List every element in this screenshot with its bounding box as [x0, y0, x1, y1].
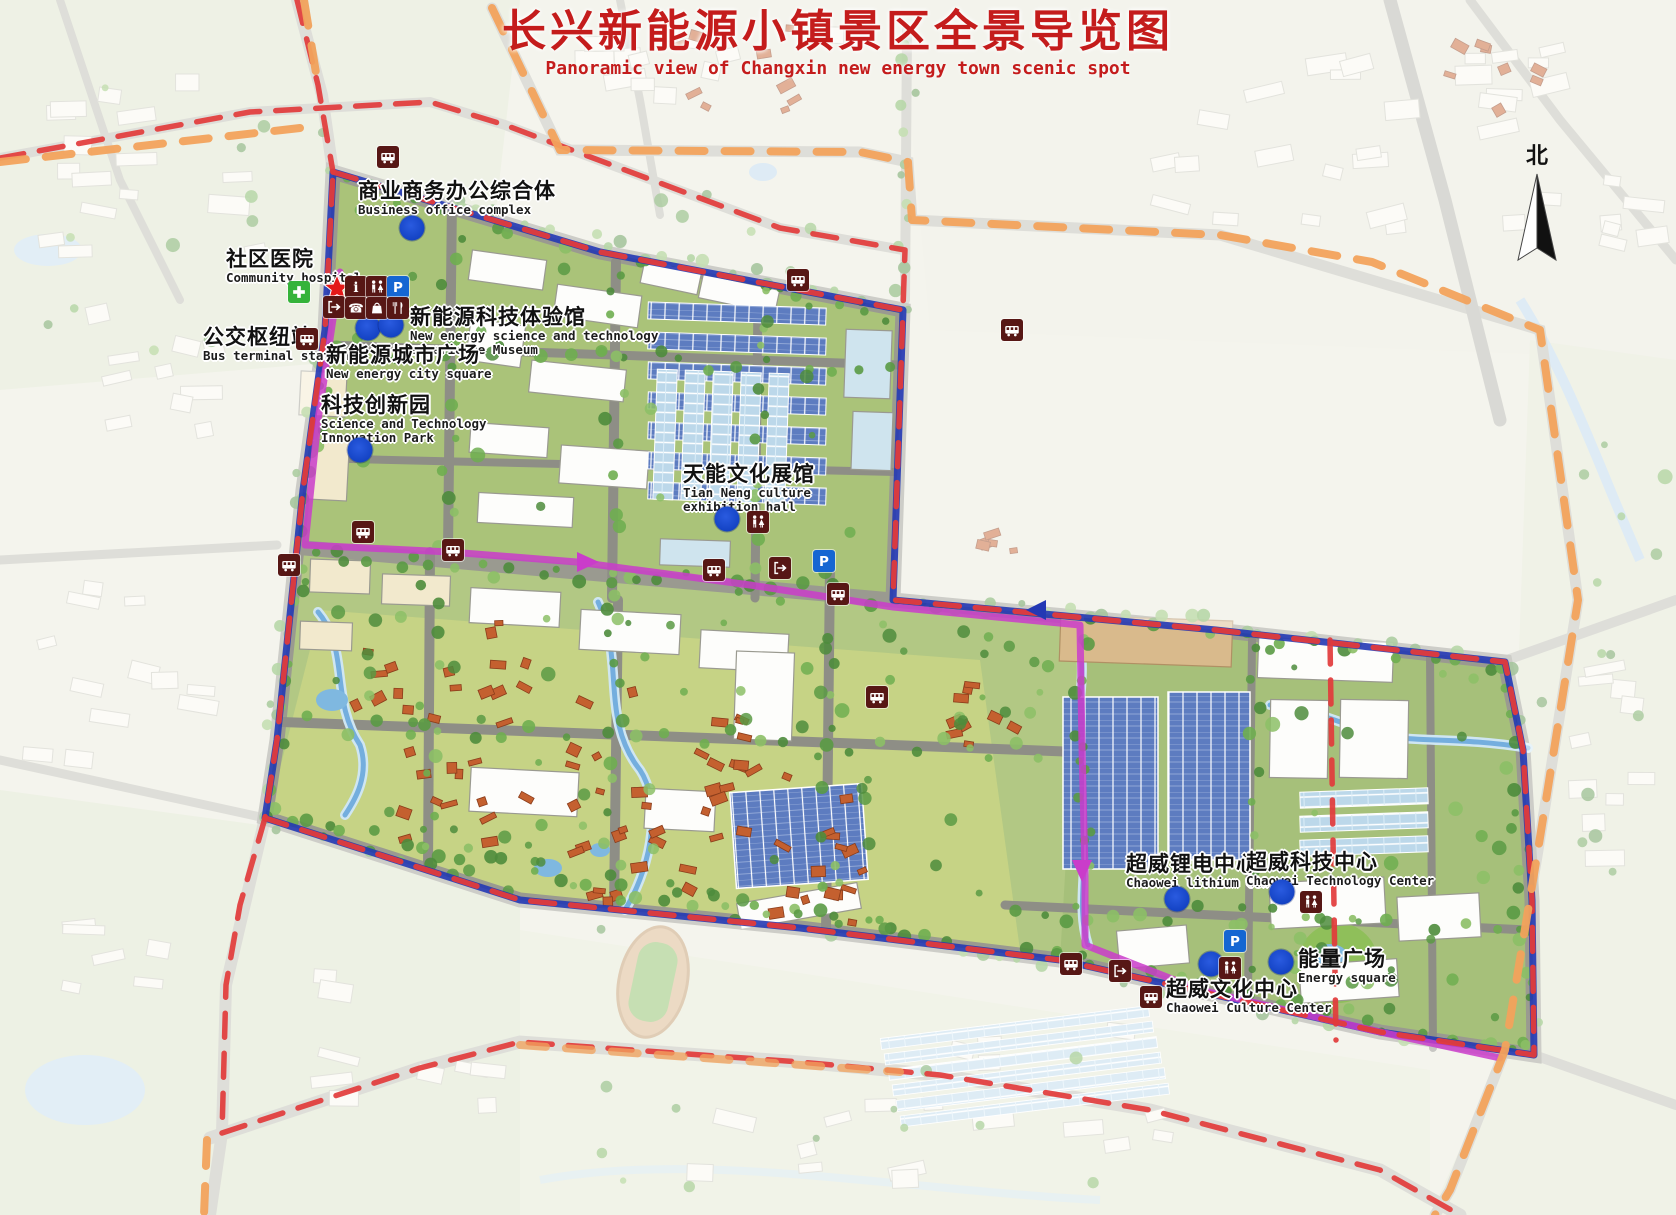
svg-text:☎: ☎	[348, 301, 364, 316]
poi-label-new-energy-city-square: 新能源城市广场New energy city square	[326, 344, 492, 381]
poi-name-en: New energy city square	[326, 367, 492, 381]
map-title-block: 长兴新能源小镇景区全景导览图 Panoramic view of Changxi…	[0, 8, 1676, 79]
bus-icon	[866, 686, 888, 708]
parking-icon: P	[387, 276, 409, 298]
map-subtitle: Panoramic view of Changxin new energy to…	[0, 58, 1676, 79]
poi-label-bus-terminal-station: 公交枢纽站Bus terminal station	[203, 326, 354, 363]
bus-icon	[787, 269, 809, 291]
poi-name-en: Energy square	[1298, 971, 1396, 985]
svg-text:P: P	[819, 554, 829, 570]
poi-name-zh: 商业商务办公综合体	[358, 180, 556, 202]
poi-name-zh: 新能源城市广场	[326, 344, 492, 366]
poi-dot	[1269, 950, 1294, 975]
exit-icon	[323, 296, 345, 318]
poi-name-zh: 社区医院	[226, 248, 361, 270]
bus-icon	[377, 146, 399, 168]
info-icon: i	[345, 276, 367, 298]
svg-text:P: P	[1230, 934, 1240, 950]
bus-icon	[278, 554, 300, 576]
phone-icon: ☎	[345, 297, 367, 319]
north-indicator: 北	[1506, 138, 1568, 268]
toilet-icon	[747, 511, 769, 533]
bus-icon	[827, 583, 849, 605]
poi-name-zh: 能量广场	[1298, 948, 1396, 970]
parking-icon: P	[813, 550, 835, 572]
bus-icon	[352, 521, 374, 543]
poi-dot	[400, 216, 425, 241]
exit-icon	[1109, 960, 1131, 982]
poi-name-en: Chaowei lithium Center	[1126, 876, 1292, 890]
bus-icon	[1060, 953, 1082, 975]
bus-icon	[296, 328, 318, 350]
poi-name-en: Bus terminal station	[203, 349, 354, 363]
hospital-cross-icon	[288, 281, 310, 303]
poi-label-sci-tech-innovation-park: 科技创新园Science and Technology Innovation P…	[321, 394, 487, 446]
poi-label-business-office-complex: 商业商务办公综合体Business office complex	[358, 180, 556, 217]
poi-name-zh: 超威锂电中心	[1126, 853, 1292, 875]
exit-icon	[769, 557, 791, 579]
bus-icon	[442, 539, 464, 561]
bus-icon	[1140, 986, 1162, 1008]
poi-dot	[1165, 887, 1190, 912]
shopping-icon	[366, 297, 388, 319]
map-overlay: 长兴新能源小镇景区全景导览图 Panoramic view of Changxi…	[0, 0, 1676, 1215]
svg-text:i: i	[353, 280, 358, 296]
poi-name-zh: 超威科技中心	[1246, 851, 1434, 873]
toilet-icon	[366, 276, 388, 298]
poi-label-energy-square: 能量广场Energy square	[1298, 948, 1396, 985]
restaurant-icon	[387, 297, 409, 319]
poi-name-en: New energy science and technology experi…	[410, 329, 658, 358]
poi-label-chaowei-culture-center: 超威文化中心Chaowei Culture Center	[1166, 978, 1332, 1015]
poi-name-zh: 天能文化展馆	[683, 463, 815, 485]
poi-dot	[356, 316, 381, 341]
north-label: 北	[1506, 138, 1568, 170]
poi-name-zh: 新能源科技体验馆	[410, 306, 658, 328]
poi-name-zh: 公交枢纽站	[203, 326, 354, 348]
poi-name-en: Chaowei Culture Center	[1166, 1001, 1332, 1015]
poi-name-en: Science and Technology Innovation Park	[321, 417, 487, 446]
poi-dot	[348, 438, 373, 463]
poi-name-zh: 超威文化中心	[1166, 978, 1332, 1000]
poi-name-zh: 科技创新园	[321, 394, 487, 416]
poi-label-new-energy-museum: 新能源科技体验馆New energy science and technolog…	[410, 306, 658, 358]
bus-icon	[703, 559, 725, 581]
toilet-icon	[1219, 957, 1241, 979]
poi-label-chaowei-lithium-center: 超威锂电中心Chaowei lithium Center	[1126, 853, 1292, 890]
poi-dot	[715, 507, 740, 532]
map-title: 长兴新能源小镇景区全景导览图	[0, 8, 1676, 56]
toilet-icon	[1300, 891, 1322, 913]
poi-dot	[1270, 880, 1295, 905]
poi-name-en: Business office complex	[358, 203, 556, 217]
svg-text:P: P	[393, 280, 403, 296]
bus-icon	[1001, 319, 1023, 341]
parking-icon: P	[1224, 930, 1246, 952]
scenic-map: 长兴新能源小镇景区全景导览图 Panoramic view of Changxi…	[0, 0, 1676, 1215]
north-arrow-icon	[1512, 172, 1562, 264]
poi-label-tianneng-culture-hall: 天能文化展馆Tian Neng culture exhibition hall	[683, 463, 815, 515]
